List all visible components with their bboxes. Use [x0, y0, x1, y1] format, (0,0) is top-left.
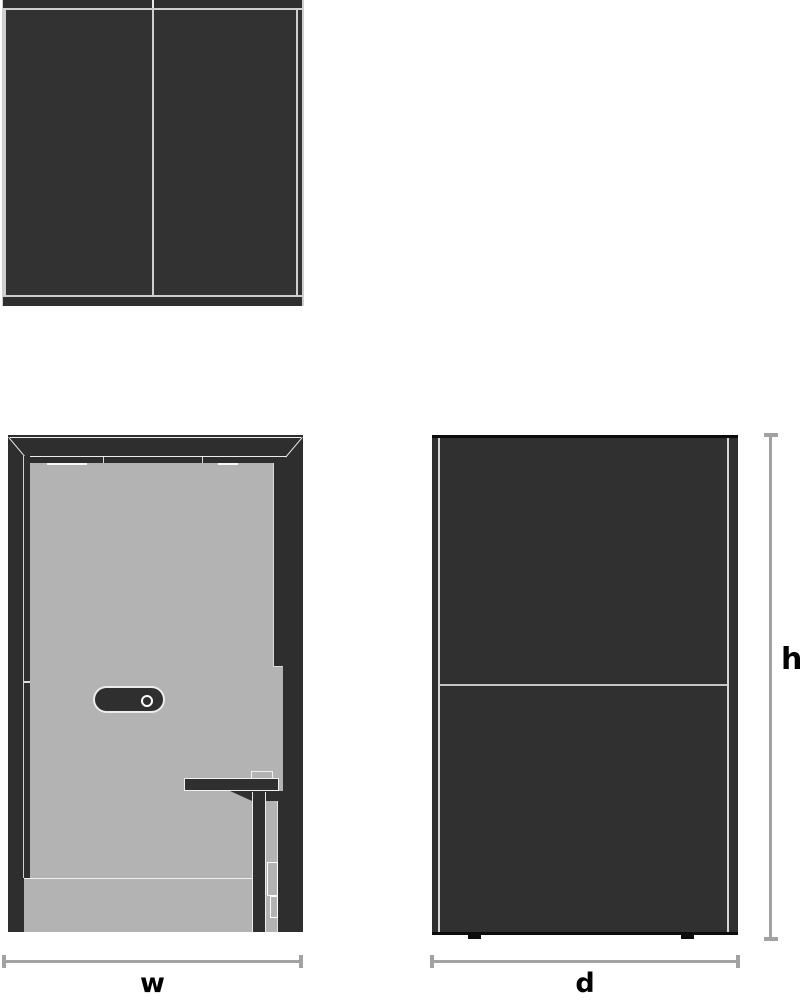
front-view [8, 435, 303, 932]
interior-column-edge [278, 791, 283, 932]
frame-miter-right [285, 437, 302, 458]
width-label: w [2, 969, 303, 999]
foot-left [468, 935, 481, 939]
depth-cap-right [736, 955, 740, 968]
top-view-side-strip [298, 10, 302, 295]
door-edge-right [273, 463, 283, 667]
height-line [769, 435, 772, 939]
top-view-left-panel [6, 10, 152, 295]
frame-miter-left [8, 437, 25, 458]
side-view [432, 435, 738, 935]
ceiling-light-segment-left [47, 463, 87, 465]
kick-panel-line [24, 878, 252, 879]
top-view-right-panel [154, 10, 296, 295]
depth-label: d [430, 969, 740, 999]
desk-top [184, 778, 279, 791]
leg-mount-plate-lower [270, 896, 278, 918]
side-top-edge [432, 435, 738, 438]
desk-leg [252, 792, 266, 932]
width-cap-right [299, 955, 303, 968]
leg-mount-plate-upper [267, 862, 278, 896]
top-view [2, 0, 304, 306]
dimension-width: w [2, 955, 303, 1000]
door-jamb-left [24, 456, 30, 878]
door-handle [93, 686, 165, 713]
door-jamb-left-notch [24, 681, 30, 683]
width-line [4, 960, 301, 963]
frame-top-hairline [10, 437, 301, 438]
height-cap-bottom [764, 937, 778, 941]
height-label: h [781, 645, 800, 675]
frame-inner-top-line [24, 456, 287, 457]
dimension-height: h [764, 433, 800, 941]
handle-lock-ring-icon [141, 695, 153, 707]
top-view-rail-notch [152, 0, 154, 8]
product-dimensions-diagram: w d h [0, 0, 800, 1000]
ceiling-light-segment-right [218, 463, 238, 465]
dimension-depth: d [430, 955, 740, 1000]
side-panel-divider [440, 684, 727, 686]
foot-right [681, 935, 694, 939]
depth-line [432, 960, 738, 963]
door-jamb-left-base [24, 879, 30, 932]
side-right-seam [727, 438, 729, 932]
top-view-back-rail [3, 297, 302, 306]
